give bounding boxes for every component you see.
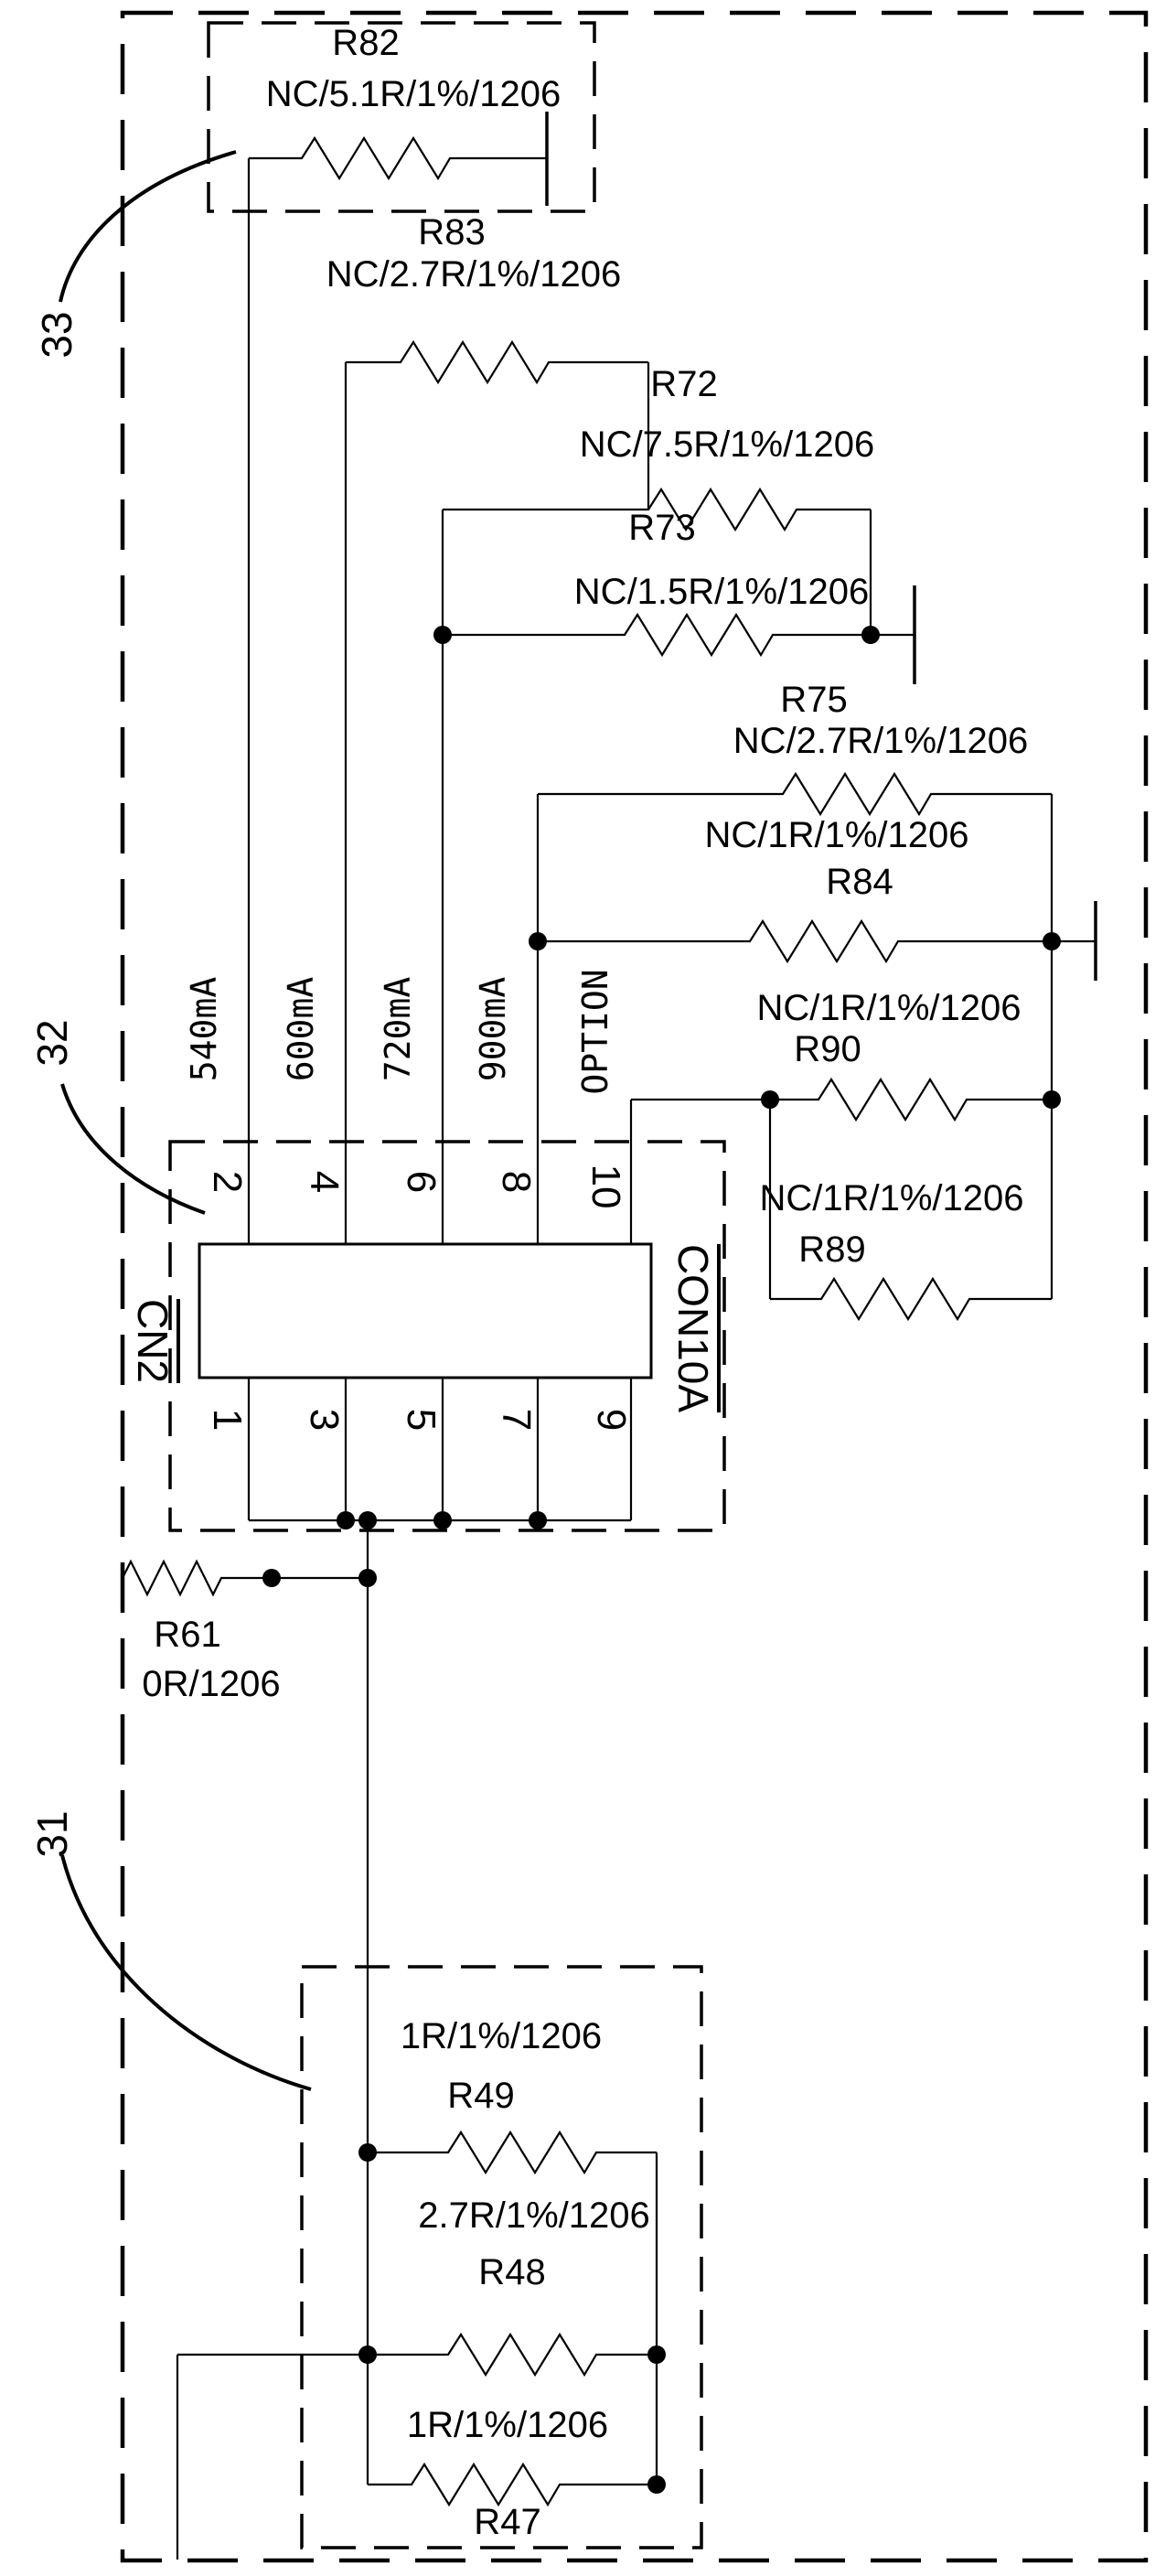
resistor-r84-symbol [538, 921, 1096, 961]
r73-value: NC/1.5R/1%/1206 [574, 574, 869, 610]
r49-designator: R49 [447, 2077, 514, 2114]
r84-value: NC/1R/1%/1206 [704, 817, 968, 853]
signal-label-600ma: 600mA [283, 977, 318, 1081]
connector-part-number: CON10A [672, 1244, 714, 1412]
r72-designator: R72 [650, 366, 717, 402]
signal-label-540ma: 540mA [187, 977, 221, 1081]
pin-label-7: 7 [496, 1409, 536, 1431]
pin-label-9: 9 [591, 1409, 631, 1431]
r61-value: 0R/1206 [142, 1666, 280, 1702]
pin-label-5: 5 [401, 1409, 441, 1431]
group-label-31: 31 [31, 1810, 73, 1857]
group-box-r82 [209, 23, 594, 211]
resistor-r89-symbol [770, 1279, 1052, 1319]
signal-label-option: OPTION [578, 969, 613, 1094]
resistor-r75-symbol [538, 774, 1052, 814]
r89-value: NC/1R/1%/1206 [759, 1180, 1023, 1217]
r48-value: 2.7R/1%/1206 [418, 2197, 650, 2234]
pin-label-10: 10 [585, 1165, 626, 1209]
r61-designator: R61 [154, 1616, 220, 1653]
connector-refdes: CN2 [132, 1299, 174, 1383]
leader-curve-33 [60, 152, 236, 302]
connector-body [199, 1244, 651, 1378]
group-label-33: 33 [36, 311, 78, 358]
r72-value: NC/7.5R/1%/1206 [580, 426, 874, 463]
resistor-r49-symbol [368, 2132, 657, 2173]
resistor-r47-symbol [368, 2464, 657, 2505]
r47-value: 1R/1%/1206 [407, 2407, 608, 2443]
signal-label-720ma: 720mA [380, 977, 415, 1081]
schematic-canvas [0, 0, 1166, 2576]
junction-dots [262, 626, 1061, 2494]
r82-designator: R82 [332, 25, 399, 61]
resistor-r82-symbol [249, 138, 547, 178]
leader-curve-32 [62, 1084, 205, 1213]
r82-value: NC/5.1R/1%/1206 [266, 76, 561, 113]
r73-designator: R73 [628, 510, 695, 546]
r49-value: 1R/1%/1206 [401, 2018, 602, 2055]
r83-designator: R83 [418, 214, 485, 251]
r89-designator: R89 [798, 1231, 865, 1268]
pin-label-8: 8 [496, 1171, 536, 1193]
r47-designator: R47 [474, 2504, 540, 2540]
leader-curve-31 [62, 1855, 311, 2089]
pin-label-2: 2 [207, 1171, 247, 1193]
pin-label-1: 1 [207, 1409, 247, 1431]
resistor-r73-symbol [443, 615, 915, 655]
pin-label-3: 3 [304, 1409, 344, 1431]
r84-designator: R84 [826, 864, 893, 900]
r75-value: NC/2.7R/1%/1206 [733, 723, 1028, 759]
resistor-r61-symbol [123, 1562, 368, 1594]
group-label-32: 32 [31, 1019, 73, 1066]
r48-designator: R48 [478, 2254, 545, 2291]
r90-designator: R90 [794, 1031, 861, 1068]
r90-value: NC/1R/1%/1206 [756, 990, 1021, 1026]
pin-label-4: 4 [304, 1171, 344, 1193]
resistor-r83-symbol [346, 342, 648, 382]
schematic-page: 33 32 31 R82 NC/5.1R/1%/1206 R83 NC/2.7R… [0, 0, 1166, 2576]
r75-designator: R75 [780, 682, 847, 718]
r83-value: NC/2.7R/1%/1206 [326, 256, 621, 293]
signal-label-900ma: 900mA [476, 977, 510, 1081]
resistor-r90-symbol [631, 1079, 1052, 1120]
resistor-r48-symbol [177, 2334, 657, 2375]
pin-label-6: 6 [401, 1171, 441, 1193]
